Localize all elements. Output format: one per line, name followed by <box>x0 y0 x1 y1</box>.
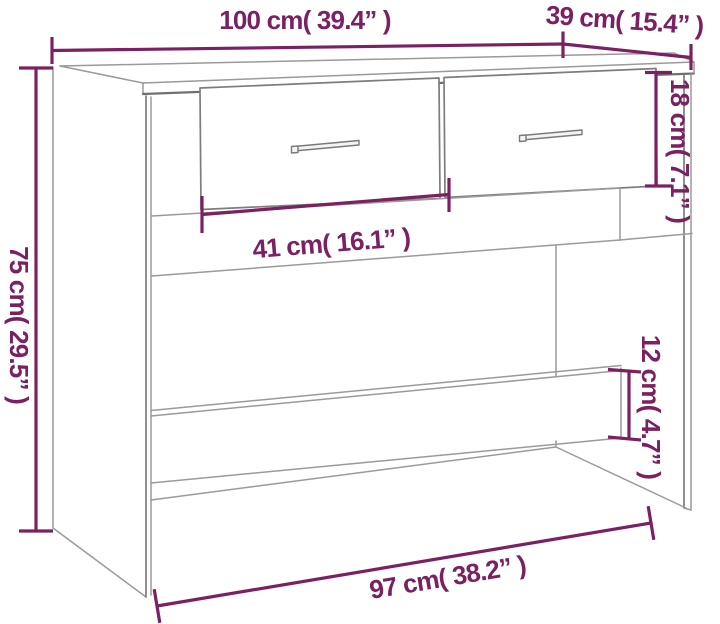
left-side-panel <box>53 67 151 597</box>
diagram-canvas: 100 cm( 39.4” ) 39 cm( 15.4” ) 75 cm( 29… <box>0 0 720 624</box>
furniture-dimension-diagram: 100 cm( 39.4” ) 39 cm( 15.4” ) 75 cm( 29… <box>0 0 720 624</box>
stretcher-board <box>151 366 621 501</box>
dim-base-width: 97 cm( 38.2” ) <box>154 506 654 623</box>
dim-top-width: 100 cm( 39.4” ) <box>52 5 563 64</box>
dim-stretcher-height-label: 12 cm( 4.7” ) <box>636 335 666 479</box>
dim-drawer-height-label: 18 cm( 7.1” ) <box>665 79 695 223</box>
console-table-drawing <box>53 53 694 597</box>
dim-top-depth-label: 39 cm( 15.4” ) <box>545 0 705 41</box>
dim-height-label: 75 cm( 29.5” ) <box>4 246 34 404</box>
dim-height: 75 cm( 29.5” ) <box>4 68 53 531</box>
dim-top-width-label: 100 cm( 39.4” ) <box>219 5 391 35</box>
dim-top-depth: 39 cm( 15.4” ) <box>545 0 705 70</box>
dim-stretcher-height: 12 cm( 4.7” ) <box>608 335 666 479</box>
